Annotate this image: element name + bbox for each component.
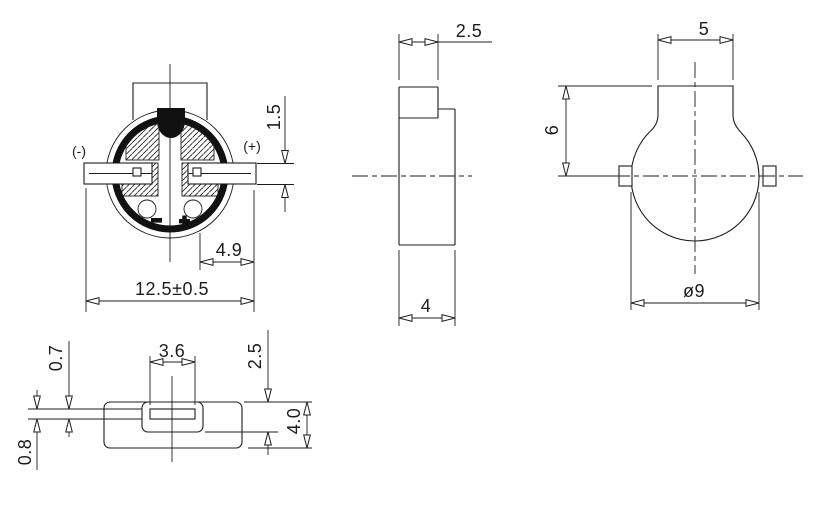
dim-text: 5 — [699, 19, 710, 39]
dim-text: 0.8 — [15, 439, 35, 466]
positive-terminal-label: (+) — [243, 138, 261, 154]
drawing-svg: (-) (+) 1.5 4.9 12.5±0.5 — [0, 0, 823, 511]
dim-text: 4.9 — [216, 240, 243, 260]
dim-tab-height: 6 — [542, 86, 652, 176]
negative-terminal-label: (-) — [72, 143, 86, 159]
dim-body-depth: 4 — [399, 250, 455, 326]
dim-text: 1.5 — [264, 104, 284, 131]
dim-body-height: 4.0 — [248, 402, 312, 448]
minus-mark — [151, 218, 162, 223]
dim-tab-depth: 2.5 — [399, 21, 492, 80]
dim-step-height: 2.5 — [205, 330, 312, 455]
dim-text: 6 — [542, 125, 562, 136]
left-terminal-notch — [133, 168, 141, 176]
front-right-hole — [184, 200, 202, 218]
side-view: 2.5 4 — [352, 21, 492, 326]
dim-text: 4 — [421, 296, 432, 316]
dim-slot-width: 3.6 — [150, 341, 195, 405]
dim-terminal-thickness: 1.5 — [257, 96, 294, 212]
front-view: (-) (+) 1.5 4.9 12.5±0.5 — [72, 64, 294, 312]
dim-pad-thickness: 0.7 — [46, 341, 72, 437]
dim-text: 0.7 — [46, 345, 66, 372]
dim-text: 2.5 — [245, 343, 265, 370]
dim-text: ø9 — [683, 281, 705, 301]
rear-top-tab — [650, 86, 741, 133]
bottom-view: 3.6 0.7 0.8 2.5 — [15, 330, 312, 470]
front-left-hole — [138, 200, 156, 218]
right-terminal-notch — [193, 168, 201, 176]
technical-drawing-canvas: (-) (+) 1.5 4.9 12.5±0.5 — [0, 0, 823, 511]
dim-lead-thickness: 0.8 — [15, 390, 40, 470]
dim-text: 4.0 — [284, 408, 304, 435]
rear-view: 5 6 ø9 — [542, 19, 803, 310]
bottom-slot — [150, 409, 195, 419]
dim-text: 3.6 — [159, 341, 186, 361]
dim-text: 12.5±0.5 — [135, 279, 209, 299]
side-outline — [399, 87, 455, 245]
dim-tab-width: 5 — [658, 19, 733, 80]
bottom-inner-boss — [142, 402, 203, 432]
dim-text: 2.5 — [456, 21, 483, 41]
